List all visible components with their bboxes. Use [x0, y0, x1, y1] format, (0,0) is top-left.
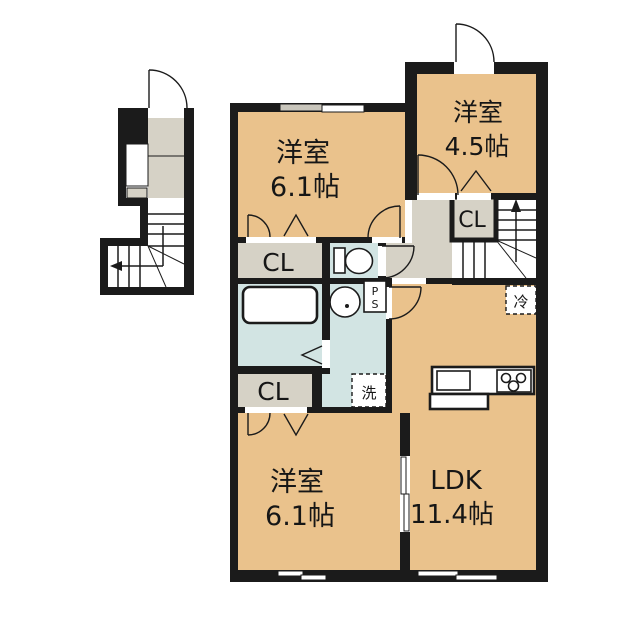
toilet-door-opening	[378, 246, 386, 276]
floor-plan-svg: 洋室 6.1帖 洋室 4.5帖 洋室 6.1帖 LDK 11.4帖 CL CL …	[0, 0, 640, 640]
stove-burner-2	[517, 374, 526, 383]
stairwell-recess	[126, 144, 148, 186]
window-ldk-b	[456, 575, 497, 580]
washbasin-drain	[345, 304, 349, 308]
room-1-size: 6.1帖	[270, 172, 340, 203]
window-room1-left	[280, 104, 322, 111]
hall-ldk-opening	[392, 278, 426, 284]
washroom-door-opening	[386, 287, 392, 319]
window-ldk-a	[418, 571, 458, 576]
room-1-label: 洋室	[276, 138, 330, 169]
genkan-floor	[148, 118, 184, 198]
room-3-label: 洋室	[270, 467, 324, 498]
closet-1-label: CL	[262, 248, 293, 277]
room-2-door-opening	[417, 193, 455, 200]
stairwell-entry-opening	[148, 108, 184, 118]
window-room3-a	[278, 571, 303, 576]
pipe-space-label-s: S	[372, 298, 379, 311]
kitchen-sink	[437, 371, 470, 390]
stove-burner-3	[509, 381, 519, 391]
window-room1-right	[322, 105, 364, 112]
closet-3-opening	[245, 407, 307, 413]
bathroom-door-opening	[322, 340, 330, 368]
closet-3-label: CL	[257, 377, 288, 406]
sliding-door-panel-a	[401, 457, 406, 494]
room-3-size: 6.1帖	[265, 501, 335, 532]
kitchen-counter-lower	[430, 394, 488, 409]
toilet-tank	[334, 248, 345, 273]
ldk-label: LDK	[430, 466, 483, 496]
stove-burner-1	[502, 374, 511, 383]
left-arrow-icon	[110, 261, 122, 271]
room-2-size: 4.5帖	[445, 132, 510, 161]
sliding-door-panel-b	[404, 494, 409, 531]
room-1-door-opening	[372, 237, 402, 243]
toilet-bowl	[346, 249, 373, 274]
stairwell-entry-door-arc	[149, 70, 187, 108]
washbasin	[330, 287, 360, 317]
refrigerator-label: 冷	[513, 293, 528, 311]
window-room3-b	[301, 575, 326, 580]
room-2-label: 洋室	[453, 98, 503, 127]
stairwell-plan	[100, 70, 194, 295]
closet-2-label: CL	[458, 208, 486, 233]
ldk-size: 11.4帖	[410, 500, 494, 530]
entry-door-opening	[454, 62, 494, 74]
shoe-cabinet	[127, 188, 147, 198]
closet-1-opening	[246, 237, 316, 243]
pipe-space-label-p: P	[372, 285, 379, 298]
up-arrow-icon	[511, 199, 521, 212]
bathtub	[243, 287, 317, 323]
floor-plan-canvas: 洋室 6.1帖 洋室 4.5帖 洋室 6.1帖 LDK 11.4帖 CL CL …	[0, 0, 640, 640]
washing-machine-label: 洗	[361, 384, 376, 402]
entry-door-arc	[456, 24, 494, 62]
closet-2-opening	[457, 193, 491, 200]
